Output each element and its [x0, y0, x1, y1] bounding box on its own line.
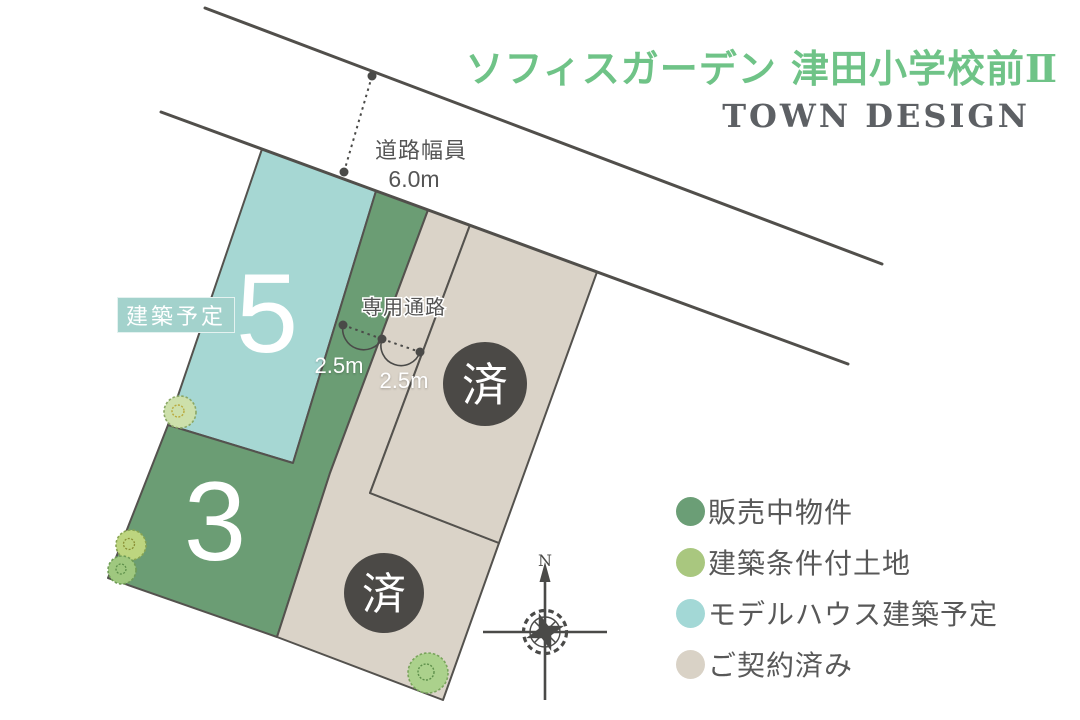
legend-item-contracted: ご契約済み [676, 649, 998, 679]
legend-swatch-icon [676, 599, 705, 628]
legend-label: 販売中物件 [708, 491, 853, 531]
header: ソフィスガーデン 津田小学校前Ⅱ TOWN DESIGN [466, 48, 1059, 132]
legend-swatch-icon [676, 650, 705, 679]
road-width-value: 6.0m [388, 166, 439, 192]
legend-item-model-house: モデルハウス建築予定 [676, 598, 998, 628]
compass-rose-icon: N [483, 551, 607, 700]
road-width-measure-line [344, 76, 372, 172]
legend-item-conditional-land: 建築条件付土地 [676, 547, 998, 577]
passage-measure-dot [339, 321, 348, 330]
construction-planned-badge: 建築予定 [117, 297, 235, 333]
legend-swatch-icon [676, 497, 705, 526]
passage-width-label-2: 2.5m [380, 368, 429, 393]
passage-label: 専用通路 [362, 296, 446, 319]
bush-icon [164, 396, 196, 428]
lot-5-number: 5 [236, 251, 298, 376]
sold-badge-text: 済 [462, 359, 508, 411]
legend-label: モデルハウス建築予定 [708, 593, 998, 633]
main-title: ソフィスガーデン 津田小学校前Ⅱ [466, 48, 1059, 90]
measure-dot [368, 72, 377, 81]
bush-icon [108, 556, 136, 584]
bush-icon [408, 653, 448, 693]
passage-measure-dot [378, 335, 387, 344]
legend-swatch-icon [676, 548, 705, 577]
passage-measure-dot [416, 348, 425, 357]
road-width-label: 道路幅員 [375, 138, 467, 163]
measure-dot [340, 168, 349, 177]
legend-label: 建築条件付土地 [708, 542, 911, 582]
subtitle: TOWN DESIGN [466, 100, 1031, 132]
lot-3-number: 3 [184, 459, 246, 584]
legend-label: ご契約済み [708, 644, 853, 684]
legend: 販売中物件 建築条件付土地 モデルハウス建築予定 ご契約済み [676, 496, 998, 700]
sold-badge-text: 済 [362, 570, 406, 619]
passage-width-label-1: 2.5m [315, 353, 364, 378]
legend-item-for-sale: 販売中物件 [676, 496, 998, 526]
